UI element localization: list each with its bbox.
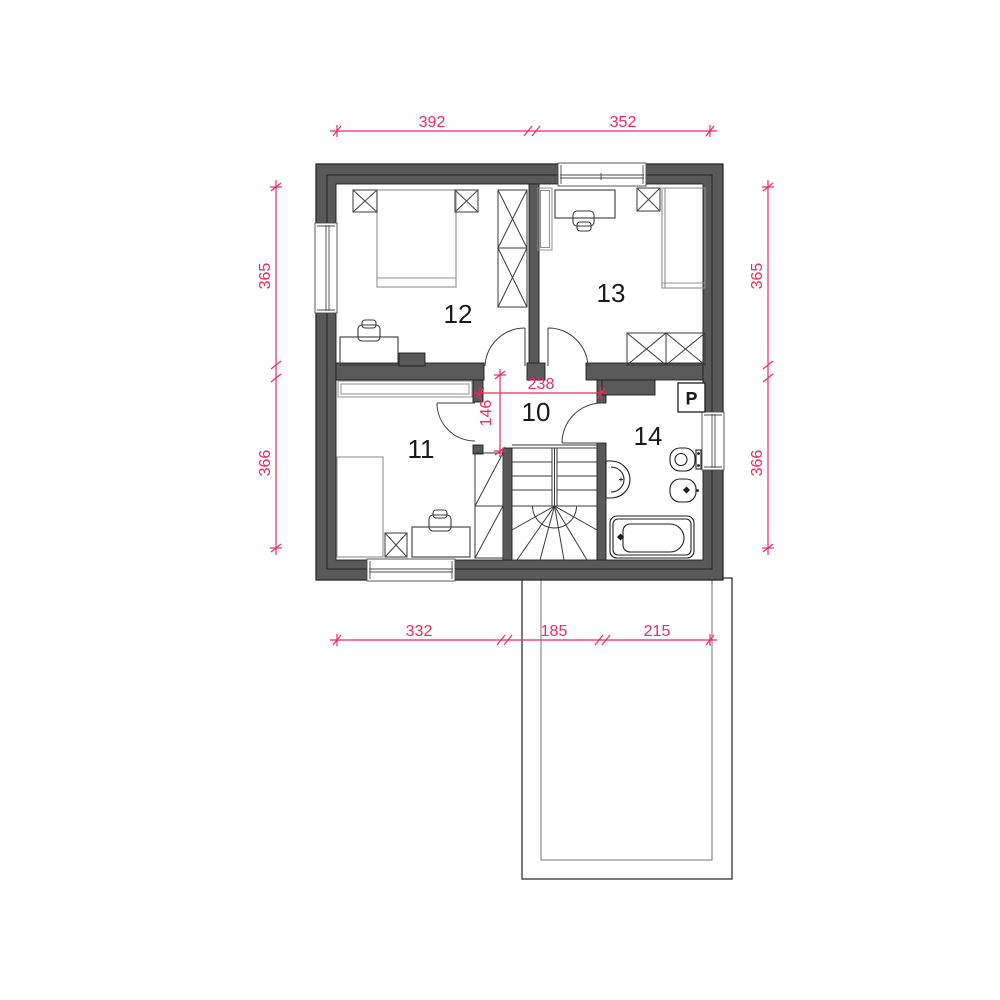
dimension-bottom: 332 185 215 (330, 623, 717, 646)
washing-machine-label: P (686, 389, 697, 408)
dim-hall-width: 238 (528, 376, 555, 393)
room-label-bathroom: 14 (634, 421, 663, 451)
dim-top-1: 392 (419, 114, 446, 131)
dim-bottom-2: 185 (541, 623, 568, 640)
window-right (702, 412, 724, 470)
floor-plan-page: P 10 11 12 13 14 392 352 (0, 0, 1000, 1000)
room-label-bedroom-11: 11 (408, 434, 435, 464)
dim-bottom-3: 215 (644, 623, 671, 640)
dim-bottom-1: 332 (406, 623, 433, 640)
room-label-bedroom-13: 13 (597, 278, 626, 308)
stairwell-wall-left (503, 448, 512, 560)
hall-cabinet-block (602, 380, 655, 395)
washing-machine: P (678, 383, 705, 412)
window-top (558, 163, 646, 186)
room12-cabinet-block (399, 353, 425, 366)
dim-top-2: 352 (610, 114, 637, 131)
dim-left-1: 365 (257, 263, 274, 290)
stairwell-wall-right (597, 443, 606, 560)
dimension-left: 365 366 (257, 180, 282, 555)
dim-left-2: 366 (257, 450, 274, 477)
dim-hall-depth: 146 (478, 400, 495, 427)
room-label-hall: 10 (522, 397, 551, 427)
dim-right-1: 365 (749, 263, 766, 290)
room-label-bedroom-12: 12 (444, 299, 473, 329)
window-left (315, 223, 337, 313)
floor-plan-canvas: P 10 11 12 13 14 392 352 (0, 0, 1000, 1000)
window-bottom (367, 559, 455, 581)
wall-room13-hall (586, 363, 703, 380)
dim-right-2: 366 (749, 450, 766, 477)
dimension-top: 392 352 (330, 114, 717, 137)
dimension-right: 365 366 (749, 180, 774, 555)
